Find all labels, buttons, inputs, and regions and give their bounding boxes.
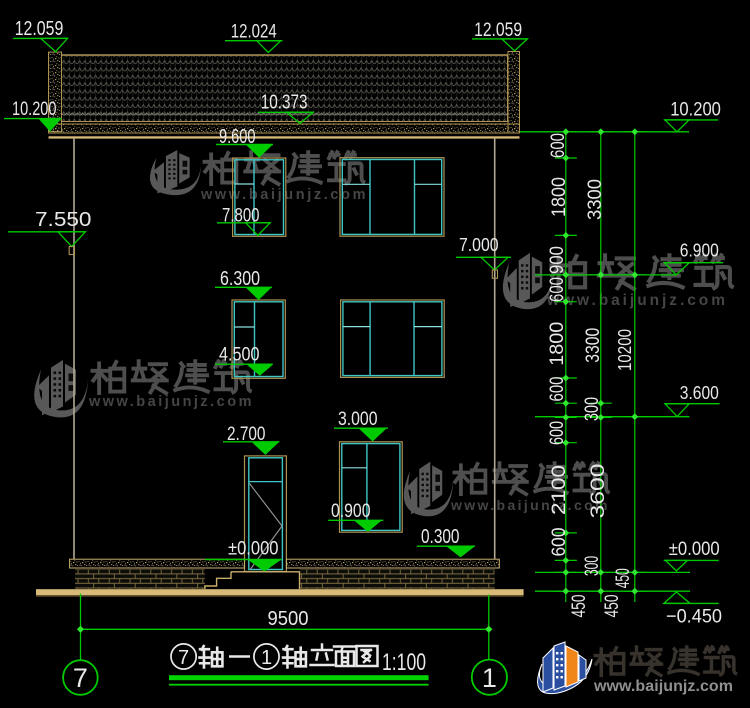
svg-text:450: 450 [569, 595, 590, 618]
svg-text:600: 600 [547, 377, 568, 402]
svg-text:1: 1 [482, 663, 497, 693]
svg-text:12.059: 12.059 [474, 19, 522, 41]
svg-text:12.024: 12.024 [231, 22, 277, 43]
svg-text:www.baijunjz.com: www.baijunjz.com [593, 678, 734, 695]
svg-text:6.900: 6.900 [680, 241, 719, 261]
svg-text:600: 600 [549, 528, 570, 557]
svg-text:4.500: 4.500 [219, 344, 260, 366]
svg-text:3300: 3300 [583, 328, 604, 363]
svg-text:3.600: 3.600 [680, 382, 719, 403]
svg-text:1:100: 1:100 [382, 649, 426, 676]
svg-text:−0.450: −0.450 [666, 606, 722, 628]
svg-text:12.059: 12.059 [15, 18, 64, 40]
svg-text:300: 300 [582, 556, 603, 576]
svg-text:10.200: 10.200 [12, 98, 57, 120]
svg-text:www.baijunjz.com: www.baijunjz.com [546, 292, 727, 309]
svg-text:450: 450 [613, 568, 634, 588]
svg-text:www.baijunjz.com: www.baijunjz.com [88, 394, 253, 410]
svg-text:7.000: 7.000 [459, 234, 499, 255]
svg-text:10200: 10200 [615, 329, 635, 371]
svg-text:0.900: 0.900 [331, 500, 371, 522]
svg-text:1: 1 [261, 647, 272, 669]
svg-text:9500: 9500 [268, 608, 309, 630]
svg-text:3.000: 3.000 [338, 408, 378, 430]
svg-text:600: 600 [547, 421, 568, 445]
svg-text:7.550: 7.550 [35, 208, 92, 231]
svg-text:www.baijunjz.com: www.baijunjz.com [450, 497, 609, 513]
svg-text:10.200: 10.200 [670, 98, 721, 120]
svg-text:7: 7 [178, 647, 189, 669]
svg-text:600: 600 [547, 277, 568, 302]
svg-text:3600: 3600 [588, 464, 609, 519]
svg-text:300: 300 [582, 397, 603, 421]
svg-text:1800: 1800 [547, 322, 568, 366]
svg-text:2100: 2100 [549, 465, 570, 515]
svg-text:450: 450 [602, 595, 623, 618]
svg-text:0.300: 0.300 [421, 526, 460, 548]
svg-text:600: 600 [548, 133, 569, 158]
svg-text:3300: 3300 [585, 179, 606, 220]
svg-text:±0.000: ±0.000 [228, 538, 279, 560]
svg-text:10.373: 10.373 [261, 91, 308, 114]
svg-text:±0.000: ±0.000 [669, 538, 720, 560]
svg-text:1800: 1800 [549, 177, 570, 217]
svg-text:900: 900 [547, 246, 568, 274]
svg-text:7: 7 [73, 663, 88, 693]
